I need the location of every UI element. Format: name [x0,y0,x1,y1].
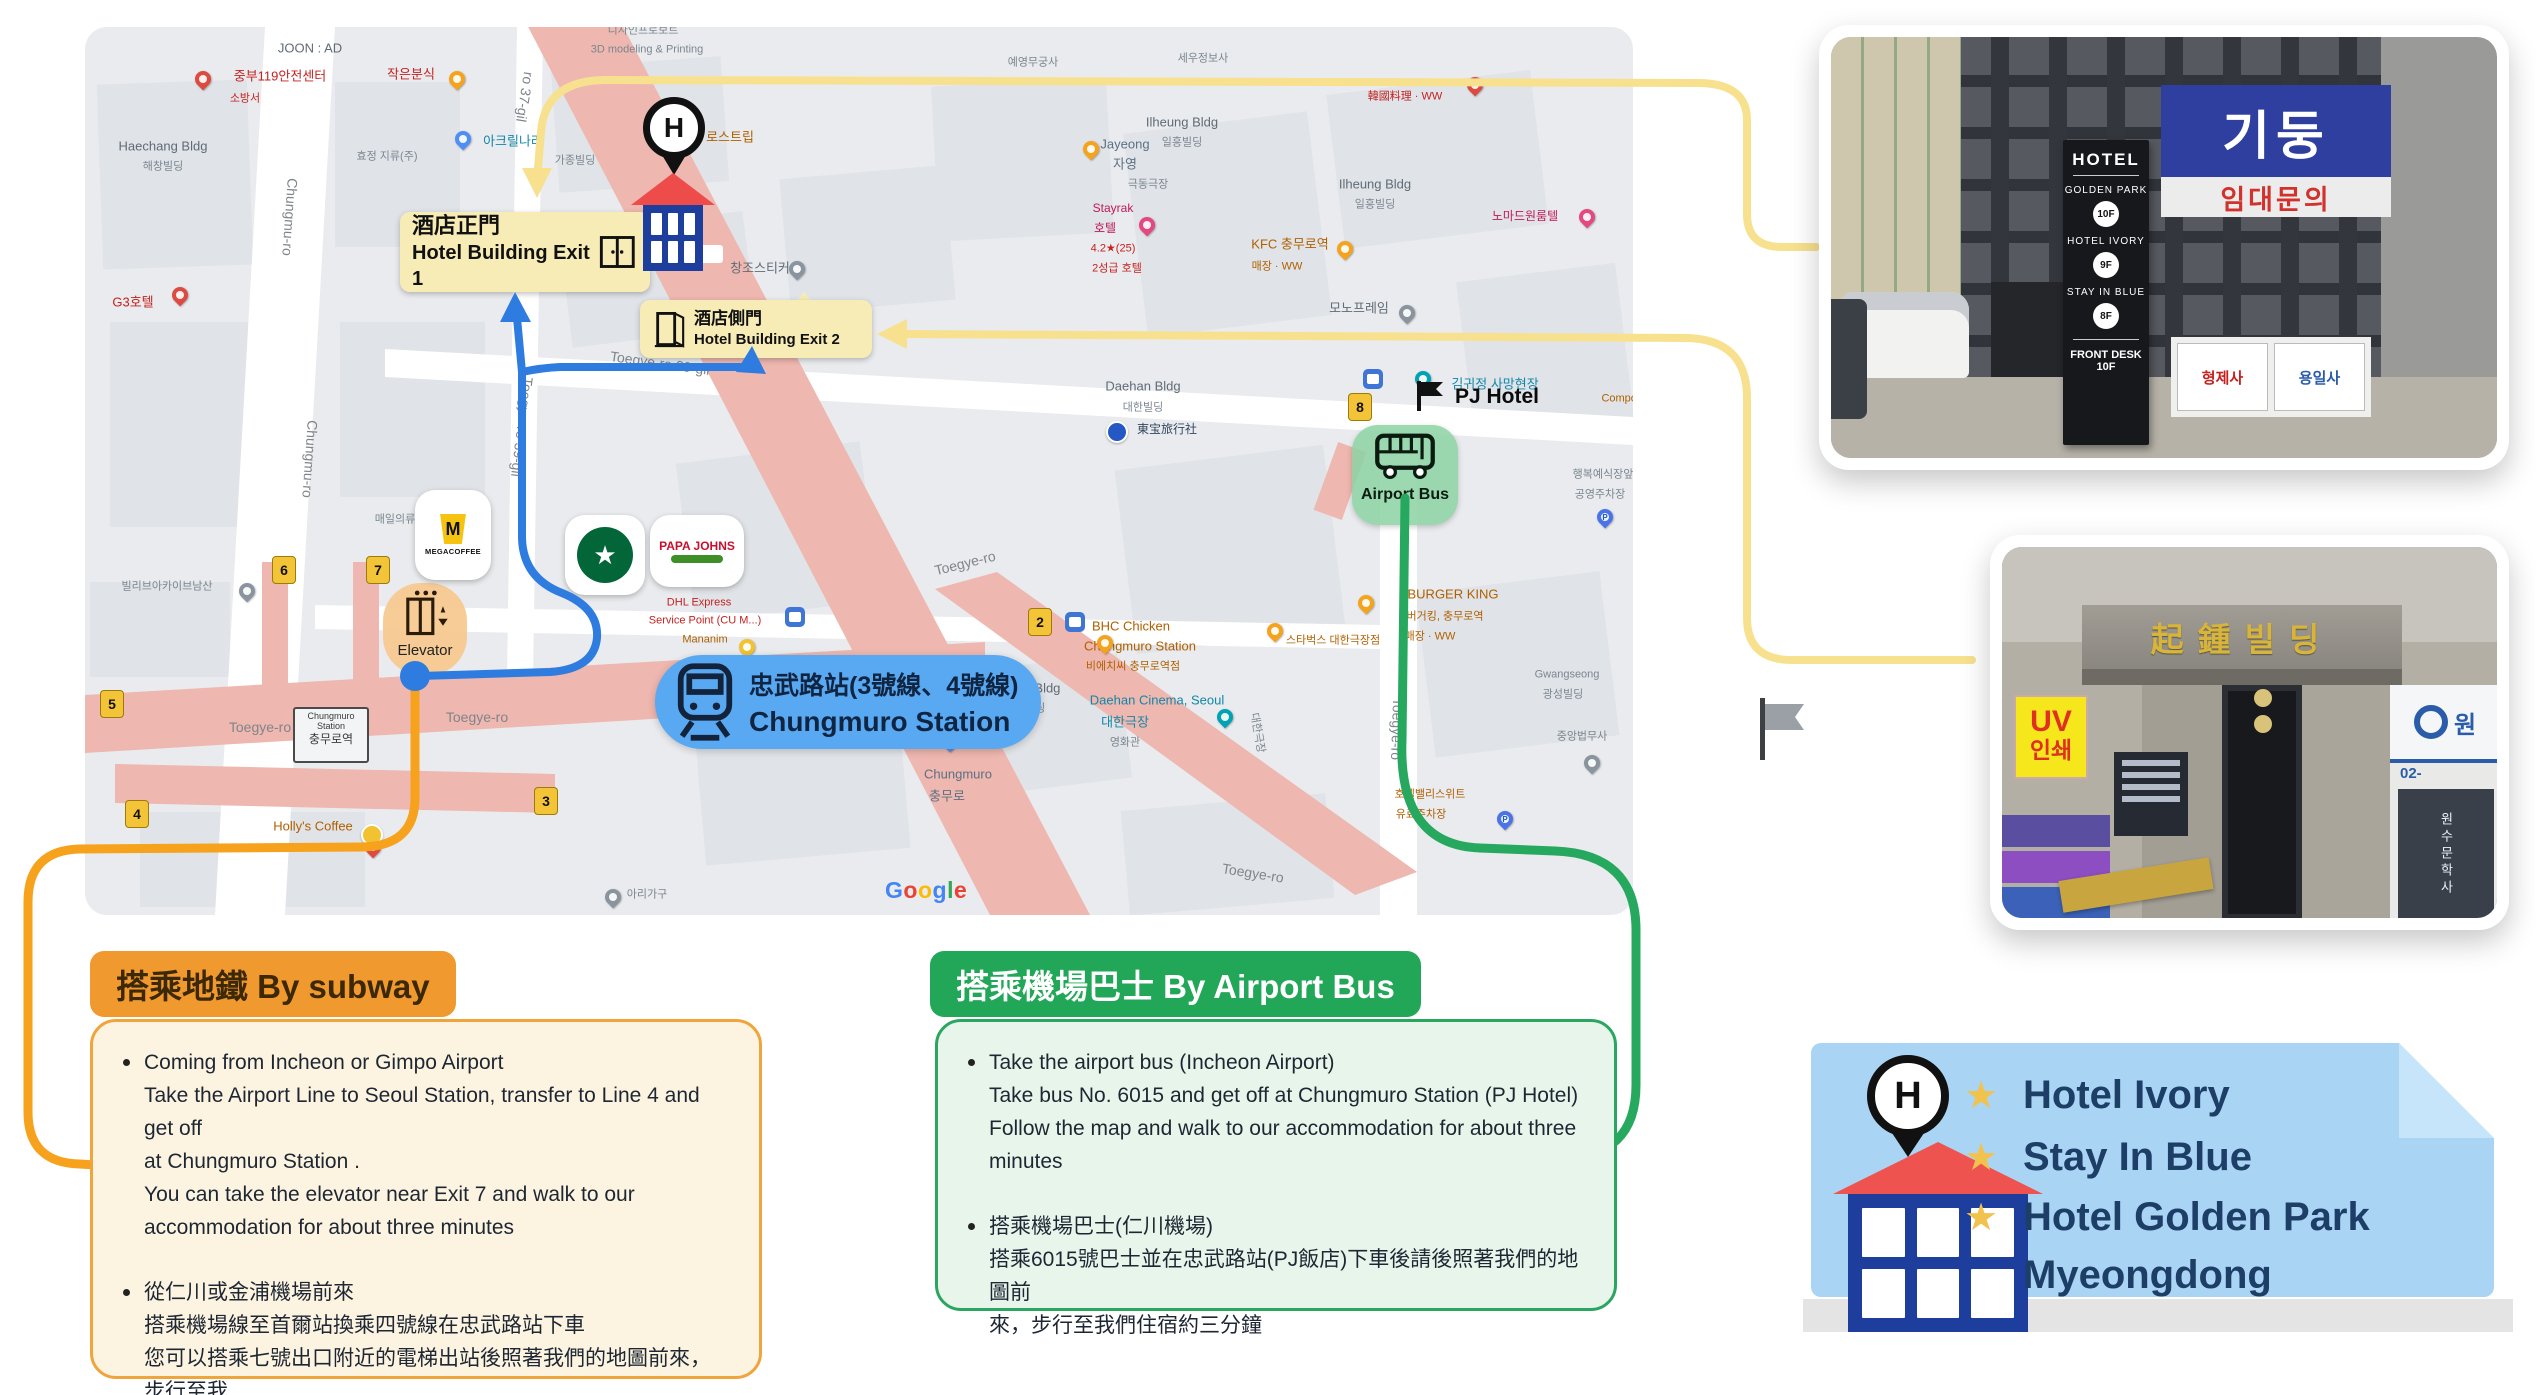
map-label: 매일의류 [375,514,415,527]
map-label: 예영무궁사 [1008,57,1059,70]
photo1-car [1831,299,1867,419]
subway-exit-badge: 2 [1028,608,1052,636]
station-capsule-en: Chungmuro Station [749,706,1018,738]
bus-stop-icon [785,607,805,627]
map-label: 노마드원룸텔 [1492,210,1558,224]
hotel-building-icon [643,205,703,271]
map-label: 호텔 [1094,222,1116,236]
directory-row-floor: 10F [2093,201,2119,227]
google-logo-letter: o [918,877,933,903]
map-label: 행복예식장앞 [1573,469,1633,482]
instruction-line: minutes [989,1145,1578,1178]
map-label: 4.2★(25) [1091,243,1136,256]
map-label: 韓國料理 · WW [1368,91,1443,104]
subway-exit-badge: 6 [272,556,296,584]
map-label: 가종빌딩 [555,155,595,168]
uv-sign-line2: 인쇄 [2016,738,2086,763]
photo2-lamp [2254,715,2272,733]
photo2-lamp [2254,689,2272,707]
exit2-label-cn: 酒店側門 [694,308,840,330]
papajohns-icon [671,555,723,563]
map-label: 매장 · WW [1252,261,1303,274]
map-label: 디자인프로보트 [608,27,679,37]
instruction-line: 搭乘6015號巴士並在忠武路站(PJ飯店)下車後請後照著我們的地圖前 [989,1243,1586,1309]
google-logo-letter: o [903,877,918,903]
map-label: KFC 충무로역 [1251,238,1328,253]
map-label: Ilheung Bldg [1339,178,1411,193]
map-label: 충무로 [929,790,965,805]
map-label: DHL Express [667,597,731,610]
bullet-dot [123,1289,130,1296]
map-label: Holly's Coffee [273,820,353,835]
exit1-label-cn: 酒店正門 [412,212,591,241]
hotel-pin-letter: H [664,112,684,144]
google-logo-letter: e [954,877,967,903]
instruction-bullet: 搭乘機場巴士(仁川機場)搭乘6015號巴士並在忠武路站(PJ飯店)下車後請後照著… [966,1210,1586,1342]
map-label: JOON : AD [278,42,342,57]
photo-hotel-exterior[interactable]: 기둥 임대문의 형제사 용일사 HOTEL GOLDEN PARK 10F HO… [1819,25,2509,470]
exit2-label-en: Hotel Building Exit 2 [694,330,840,350]
instruction-line: at Chungmuro Station . [144,1145,731,1178]
map-label: 2성급 호텔 [1092,263,1142,276]
hotel-list-item: ★Stay In Blue [1961,1135,2252,1180]
bullet-dot [123,1059,130,1066]
station-box-line3: 충무로역 [295,733,367,746]
map-label: 공영주차장 [1575,489,1626,502]
directory-row-name: HOTEL IVORY [2063,236,2149,247]
photo2-store-window: 원수문학사 [2398,789,2494,918]
map-label: 로스트립 [706,131,754,146]
photo2-column-right [2302,685,2392,918]
map-label: 영화관 [1110,737,1140,750]
map-label: 아크릴나라 [483,135,543,150]
map-label: 효정 지류(주) [357,151,418,164]
bullet-lines: 搭乘機場巴士(仁川機場)搭乘6015號巴士並在忠武路站(PJ飯店)下車後請後照著… [989,1210,1586,1342]
map-label: G3호텔 [112,296,153,311]
map-label: 아리가구 [627,889,667,902]
card-pin-letter: H [1894,1075,1921,1118]
map-label: Daehan Bldg [1105,380,1180,395]
map-label: 호텔밸리스위트 [1395,789,1466,802]
map-label: 빌리브아카이브남산 [121,581,212,594]
photo1-entrance [1991,282,2071,382]
elevator-icon [399,589,451,639]
bus-stop-icon [1363,369,1383,389]
subway-exit-badge: 4 [125,800,149,828]
hotel-name-text: Myeongdong [2023,1253,2272,1298]
chungmuro-station-capsule[interactable]: 忠武路站(3號線、4號線) Chungmuro Station [655,655,1041,749]
map-label: 버거킹, 충무로역 [1407,611,1484,624]
papajohns-marker[interactable]: PAPA JOHNS [650,515,744,587]
instruction-line: 您可以搭乘七號出口附近的電梯出站後照著我們的地圖前來，步行至我 [144,1342,731,1395]
papajohns-label: PAPA JOHNS [659,540,735,552]
bullet-lines: Take the airport bus (Incheon Airport)Ta… [989,1046,1578,1178]
photo1-pavement [1831,377,2497,458]
instruction-line: Coming from Incheon or Gimpo Airport [144,1046,731,1079]
instruction-line: accommodation for about three minutes [144,1211,731,1244]
map-label: 일흥빌딩 [1162,137,1202,150]
exit1-label-en: Hotel Building Exit 1 [412,240,591,292]
subway-exit-badge: 8 [1348,393,1372,421]
map-label: 유료주차장 [1396,809,1447,822]
map-label: 비에치씨 충무로역점 [1086,661,1180,674]
map-panel[interactable]: JOON : AD중부119안전센터소방서Haechang Bldg해창빌딩G3… [85,27,1633,915]
airport-bus-label: Airport Bus [1352,486,1458,504]
photo1-korean-sign: 기둥 [2161,85,2391,177]
directory-row-name: GOLDEN PARK [2063,185,2149,196]
map-label: Haechang Bldg [119,140,208,155]
google-logo: Google [885,877,967,904]
airport-bus-stop[interactable]: Airport Bus [1352,425,1458,525]
google-logo-letter: l [947,877,954,903]
hotel-name-text: Hotel Ivory [2023,1073,2230,1118]
elevator-label: Elevator [383,642,467,659]
card-hotel-pin: H [1867,1055,1949,1173]
photo2-phone: 02- [2400,765,2422,782]
double-door-icon [597,230,638,274]
bus-icon [1373,431,1437,479]
map-label: 광성빌딩 [1543,689,1583,702]
photo2-canopy-shadow [2082,669,2402,685]
directory-footer: FRONT DESK 10F [2063,349,2149,373]
station-capsule-cn: 忠武路站(3號線、4號線) [749,666,1018,702]
map-label: Gwangseong [1535,669,1600,682]
map-label: 해창빌딩 [143,161,183,174]
google-logo-letter: G [885,877,903,903]
map-label: 스타벅스 대한극장점 [1286,635,1380,648]
instruction-line: 來，步行至我們住宿約三分鐘 [989,1309,1586,1342]
store-logo-icon [2414,705,2448,739]
map-label: Ilheung Bldg [1146,116,1218,131]
star-icon: ★ [1961,1073,2001,1118]
station-box-line2: Station [295,722,367,732]
exit2-label[interactable]: 酒店側門 Hotel Building Exit 2 [640,300,872,358]
directory-title: HOTEL [2063,150,2149,170]
train-icon [669,662,741,742]
map-label: Stayrak [1093,202,1134,216]
map-label: BHC Chicken [1092,620,1170,635]
instruction-bullet: 從仁川或金浦機場前來搭乘機場線至首爾站換乘四號線在忠武路站下車您可以搭乘七號出口… [121,1276,731,1395]
map-label: 극동극장 [1128,179,1168,192]
hotel-list-continuation: Myeongdong [2023,1253,2272,1298]
map-pin[interactable] [361,824,383,846]
instruction-line: Follow the map and walk to our accommoda… [989,1112,1578,1145]
exit1-label[interactable]: 酒店正門 Hotel Building Exit 1 [400,212,650,292]
elevator-marker[interactable]: Elevator [383,583,467,675]
map-label: BURGER KING [1407,588,1498,603]
map-pin[interactable] [1106,421,1128,443]
photo2-building-sign: 起鍾빌딩 [2151,613,2334,661]
hotel-name-text: Hotel Golden Park [2023,1195,2370,1240]
map-label: Mananim [682,634,727,647]
hotel-name-text: Stay In Blue [2023,1135,2252,1180]
map-label: Toegye-ro [1388,698,1406,761]
waypoint-flag-icon [1756,696,1810,762]
map-label: 소방서 [230,93,260,106]
map-label: 모노프레임 [1329,302,1389,317]
map-label: 중부119안전센터 [234,70,327,85]
google-logo-letter: g [933,877,948,903]
starbucks-marker[interactable]: ★ [565,515,645,595]
subway-section-badge: 搭乘地鐵 By subway [90,951,456,1017]
subway-exit-badge: 7 [366,556,390,584]
map-label: 중앙법무사 [1557,731,1608,744]
photo2-uv-sign: UV 인쇄 [2014,695,2088,779]
instruction-line: 搭乘機場線至首爾站換乘四號線在忠武路站下車 [144,1309,731,1342]
photo1-side-sign1: 형제사 [2177,343,2268,411]
hotel-list-item: ★Hotel Golden Park [1961,1195,2370,1240]
photo1-hotel-directory-sign: HOTEL GOLDEN PARK 10F HOTEL IVORY 9F STA… [2063,140,2149,445]
hotel-roof-icon [631,173,715,205]
photo2-store-sign: 원 [2390,685,2497,763]
map-label: 대한빌딩 [1123,402,1163,415]
directory-row-name: STAY IN BLUE [2063,287,2149,298]
photo2-canopy: 起鍾빌딩 [2082,605,2402,673]
pj-hotel-label: PJ Hotel [1455,385,1539,409]
subway-exit-badge: 3 [534,787,558,815]
photo1-shop-signs: 형제사 용일사 [2171,337,2371,417]
bullet-lines: 從仁川或金浦機場前來搭乘機場線至首爾站換乘四號線在忠武路站下車您可以搭乘七號出口… [144,1276,731,1395]
hotel-list-item: ★Hotel Ivory [1961,1073,2230,1118]
map-label: 작은분식 [387,68,435,83]
map-label: Chungmuro [924,768,992,783]
map-label: 東宝旅行社 [1137,423,1197,437]
map-label: Jayeong [1100,138,1149,153]
subway-exit-badge: 5 [100,690,124,718]
map-label: Service Point (CU M...) [649,615,761,628]
instruction-line: Take bus No. 6015 and get off at Chungmu… [989,1079,1578,1112]
instruction-line: 從仁川或金浦機場前來 [144,1276,731,1309]
map-label: 매장 · WW [1405,631,1456,644]
megacoffee-marker[interactable]: M MEGACOFFEE [415,490,491,580]
map-label: 자영 [1113,158,1137,173]
map-label: 일흥빌딩 [1355,199,1395,212]
map-label: 대한극장 [1101,716,1149,731]
bullet-dot [968,1059,975,1066]
card-fold-cut [2399,1043,2494,1138]
starbucks-icon: ★ [577,527,633,583]
station-street-box: Chungmuro Station 충무로역 [293,707,369,763]
uv-sign-line1: UV [2016,705,2086,738]
instruction-bullet: Coming from Incheon or Gimpo AirportTake… [121,1046,731,1244]
map-label: 창조스티커 [730,262,790,277]
photo1-lease-sign: 임대문의 [2161,177,2391,217]
map-label: Daehan Cinema, Seoul [1090,694,1224,709]
photo-building-entrance[interactable]: 起鍾빌딩 UV 인쇄 원 02- 원수문학사 [1990,535,2509,930]
instruction-line: 搭乘機場巴士(仁川機場) [989,1210,1586,1243]
star-icon: ★ [1961,1135,2001,1180]
directory-row-floor: 9F [2093,252,2119,278]
map-label: 3D modeling & Printing [591,44,704,57]
star-icon: ★ [1961,1195,2001,1240]
map-label: Toegye-ro [446,709,508,725]
pj-hotel-flag-icon [1415,379,1445,413]
hotel-name-card[interactable]: H ★Hotel Ivory★Stay In Blue★Hotel Golden… [1811,1043,2494,1297]
photo1-side-sign2: 용일사 [2274,343,2365,411]
store-logo-text: 원 [2454,705,2476,740]
map-label: Toegye-ro [229,719,291,735]
map-label: 세우정보사 [1178,53,1229,66]
directory-row-floor: 8F [2093,303,2119,329]
subway-instructions-box: Coming from Incheon or Gimpo AirportTake… [90,1019,762,1379]
open-door-icon [652,309,686,349]
instruction-bullet: Take the airport bus (Incheon Airport)Ta… [966,1046,1586,1178]
instruction-line: Take the Airport Line to Seoul Station, … [144,1079,731,1145]
bullet-dot [968,1223,975,1230]
bus-stop-icon [1065,612,1085,632]
instruction-line: Take the airport bus (Incheon Airport) [989,1046,1578,1079]
megacoffee-icon: M [436,514,470,544]
photo2-directory-board [2114,752,2188,836]
bus-instructions-box: Take the airport bus (Incheon Airport)Ta… [935,1019,1617,1311]
bullet-lines: Coming from Incheon or Gimpo AirportTake… [144,1046,731,1244]
instruction-line: You can take the elevator near Exit 7 an… [144,1178,731,1211]
hotel-pin-icon: H [643,97,705,159]
megacoffee-label: MEGACOFFEE [425,547,481,556]
map-label: Compose [1601,393,1633,406]
bus-section-badge: 搭乘機場巴士 By Airport Bus [930,951,1421,1017]
